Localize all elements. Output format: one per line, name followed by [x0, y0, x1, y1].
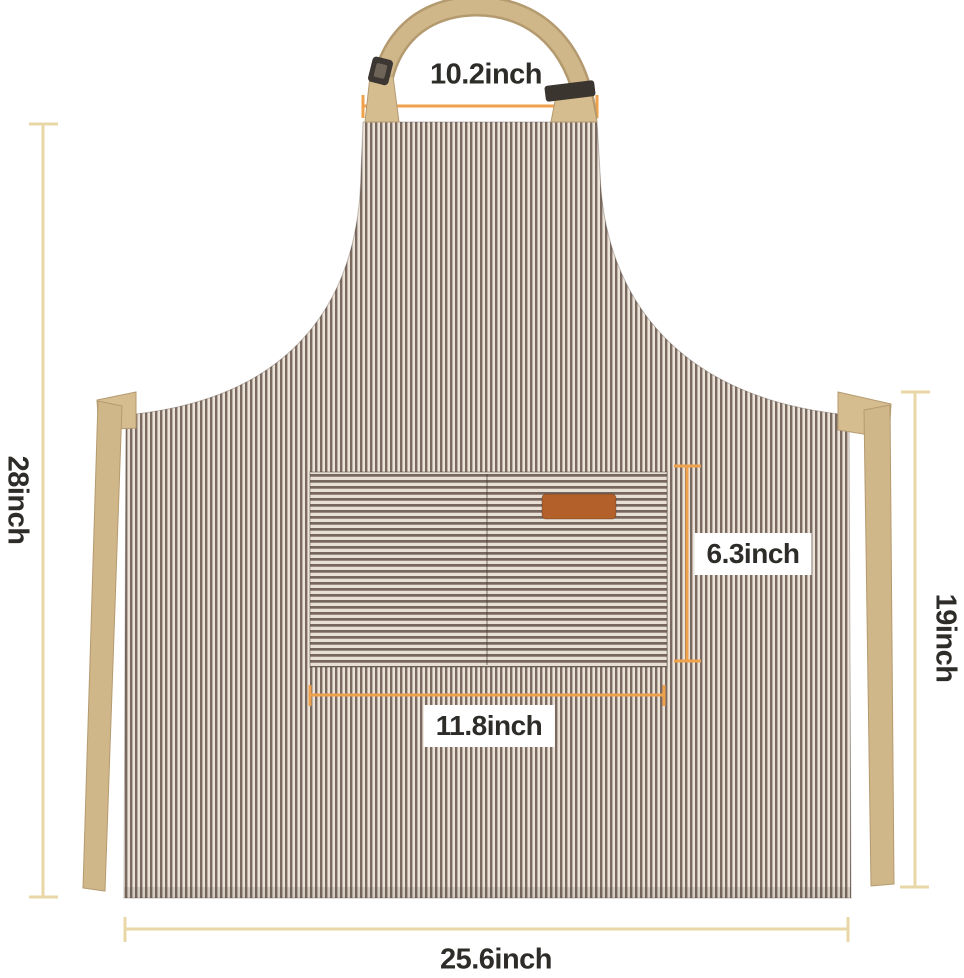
dimension-label-bottom-width: 25.6inch	[440, 946, 552, 975]
waist-tie-left-strap	[83, 401, 122, 891]
dimension-label-pocket-width: 11.8inch	[424, 705, 555, 747]
leather-logo-patch	[542, 494, 616, 519]
dimension-label-neck-strap-width: 10.2inch	[430, 61, 542, 90]
apron-illustration	[0, 0, 964, 978]
dimension-label-total-height: 28inch	[3, 456, 32, 545]
pocket	[310, 472, 667, 667]
apron-dimension-diagram: 10.2inch 28inch 19inch 6.3inch 11.8inch …	[0, 0, 964, 978]
apron-hem	[124, 887, 851, 898]
waist-tie-right-strap	[864, 405, 894, 886]
dimension-label-pocket-height: 6.3inch	[695, 533, 812, 575]
dimension-label-waist-height: 19inch	[931, 594, 960, 683]
